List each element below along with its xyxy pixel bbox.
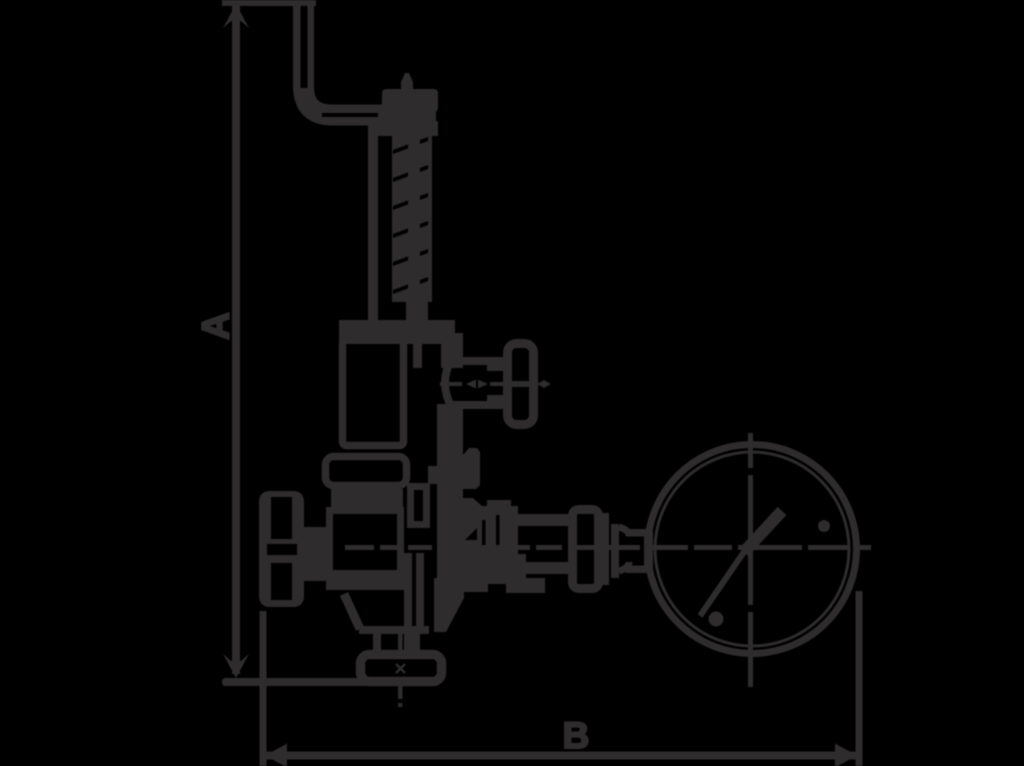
svg-text:B: B	[563, 715, 590, 756]
svg-text:A: A	[196, 312, 238, 339]
